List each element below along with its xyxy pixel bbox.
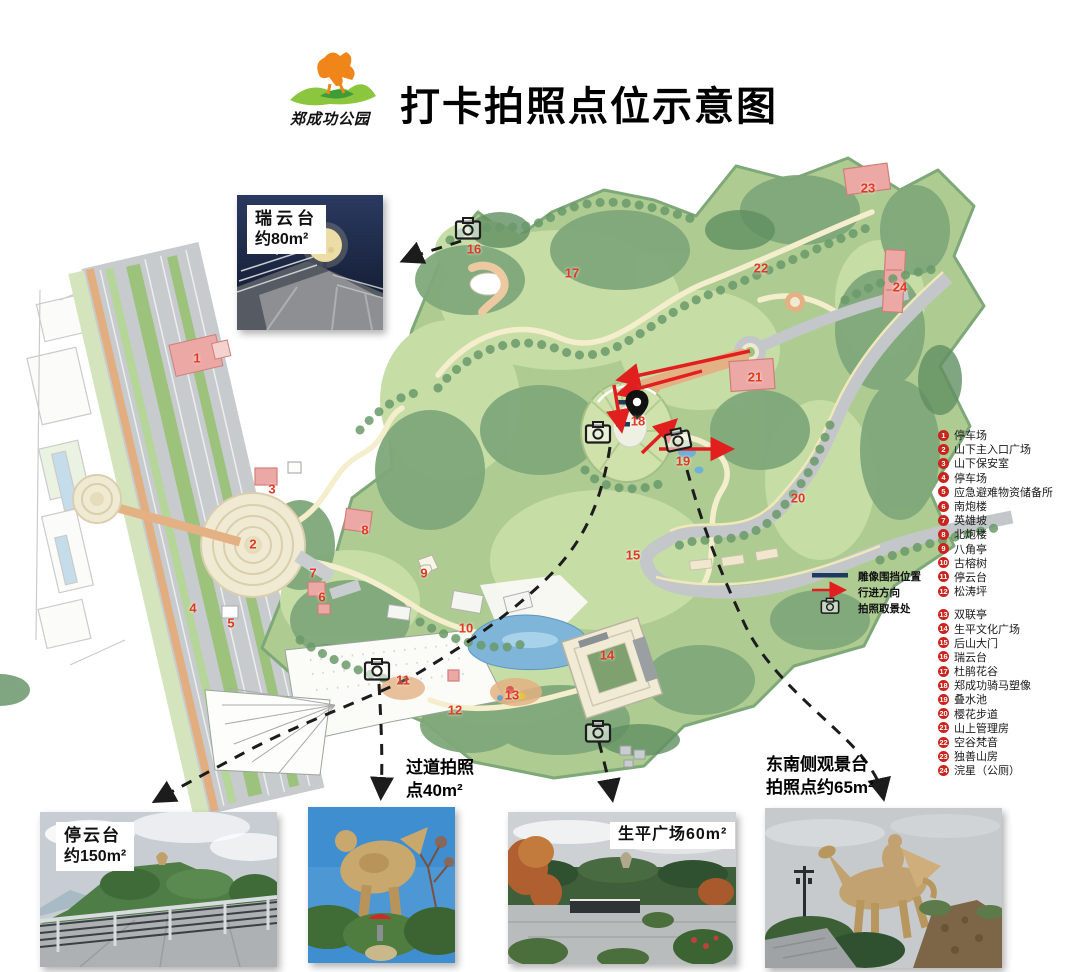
photo-tingyuntai: 停云台 约150m² xyxy=(40,812,277,967)
camera-icon xyxy=(586,721,610,742)
legend-item-11: 11停云台 xyxy=(938,570,1080,584)
legend-item-13: 13双联亭 xyxy=(938,607,1080,621)
legend-label: 浣星（公厕） xyxy=(954,762,1020,778)
legend-number-badge: 22 xyxy=(938,737,949,748)
legend-number-badge: 4 xyxy=(938,472,949,483)
legend-item-22: 22空谷梵音 xyxy=(938,735,1080,749)
legend-item-24: 24浣星（公厕） xyxy=(938,763,1080,777)
photo-label-tingyuntai: 停云台 约150m² xyxy=(56,822,134,871)
legend-number-badge: 8 xyxy=(938,529,949,540)
camera-icon xyxy=(456,218,480,239)
legend-item-2: 2山下主入口广场 xyxy=(938,442,1080,456)
camera-icon xyxy=(586,422,610,443)
legend-item-14: 14生平文化广场 xyxy=(938,621,1080,635)
legend-label: 松涛坪 xyxy=(954,583,987,599)
legend-item-9: 9八角亭 xyxy=(938,542,1080,556)
photo-guodao xyxy=(308,807,455,963)
legend-item-6: 6南炮楼 xyxy=(938,499,1080,513)
legend-number-badge: 14 xyxy=(938,623,949,634)
infographic-page: 郑成功公园 打卡拍照点位示意图 xyxy=(0,0,1080,972)
legend-number-badge: 11 xyxy=(938,571,949,582)
legend-item-23: 23独善山房 xyxy=(938,749,1080,763)
photo-label-shengping: 生平广场60m² xyxy=(610,822,735,849)
legend-item-17: 17杜鹃花谷 xyxy=(938,664,1080,678)
legend-number-badge: 19 xyxy=(938,694,949,705)
legend-number-badge: 1 xyxy=(938,430,949,441)
legend-number-badge: 6 xyxy=(938,501,949,512)
legend-item-4: 4停车场 xyxy=(938,471,1080,485)
legend-item-16: 16瑞云台 xyxy=(938,650,1080,664)
legend-number-badge: 12 xyxy=(938,586,949,597)
legend-item-15: 15后山大门 xyxy=(938,636,1080,650)
photo-shengping: 生平广场60m² xyxy=(508,812,736,964)
legend-item-3: 3山下保安室 xyxy=(938,456,1080,470)
legend-number-badge: 23 xyxy=(938,751,949,762)
photo-ruiyuntai: 瑞云台 约80m² xyxy=(237,195,383,330)
legend-item-20: 20樱花步道 xyxy=(938,707,1080,721)
legend-number-badge: 10 xyxy=(938,557,949,568)
legend-number-badge: 16 xyxy=(938,651,949,662)
legend-number-badge: 9 xyxy=(938,543,949,554)
legend-number-badge: 18 xyxy=(938,680,949,691)
camera-icon xyxy=(365,659,389,680)
photo-label-ruiyuntai: 瑞云台 约80m² xyxy=(247,205,326,254)
legend-number-badge: 21 xyxy=(938,722,949,733)
label-guodao: 过道拍照 点40m² xyxy=(406,757,474,803)
legend-number-badge: 15 xyxy=(938,637,949,648)
legend-item-1: 1停车场 xyxy=(938,428,1080,442)
legend: 1停车场2山下主入口广场3山下保安室4停车场5应急避难物资储备所6南炮楼7英雄坡… xyxy=(938,428,1080,778)
mini-legend-label: 行进方向 xyxy=(858,585,900,600)
legend-number-badge: 20 xyxy=(938,708,949,719)
legend-number-badge: 5 xyxy=(938,486,949,497)
legend-number-badge: 24 xyxy=(938,765,949,776)
legend-item-5: 5应急避难物资储备所 xyxy=(938,485,1080,499)
legend-item-18: 18郑成功骑马塑像 xyxy=(938,678,1080,692)
legend-item-7: 7英雄坡 xyxy=(938,513,1080,527)
legend-item-8: 8北炮楼 xyxy=(938,527,1080,541)
legend-item-12: 12松涛坪 xyxy=(938,584,1080,598)
legend-number-badge: 2 xyxy=(938,444,949,455)
legend-number-badge: 13 xyxy=(938,609,949,620)
photo-dongnan xyxy=(765,808,1002,968)
mini-legend-label: 雕像围挡位置 xyxy=(858,569,921,584)
mini-legend-label: 拍照取景处 xyxy=(858,601,911,616)
legend-item-10: 10古榕树 xyxy=(938,556,1080,570)
legend-number-badge: 3 xyxy=(938,458,949,469)
legend-number-badge: 7 xyxy=(938,515,949,526)
legend-item-19: 19叠水池 xyxy=(938,692,1080,706)
legend-item-21: 21山上管理房 xyxy=(938,721,1080,735)
label-dongnan: 东南侧观景台 拍照点约65m² xyxy=(766,754,874,800)
legend-number-badge: 17 xyxy=(938,666,949,677)
